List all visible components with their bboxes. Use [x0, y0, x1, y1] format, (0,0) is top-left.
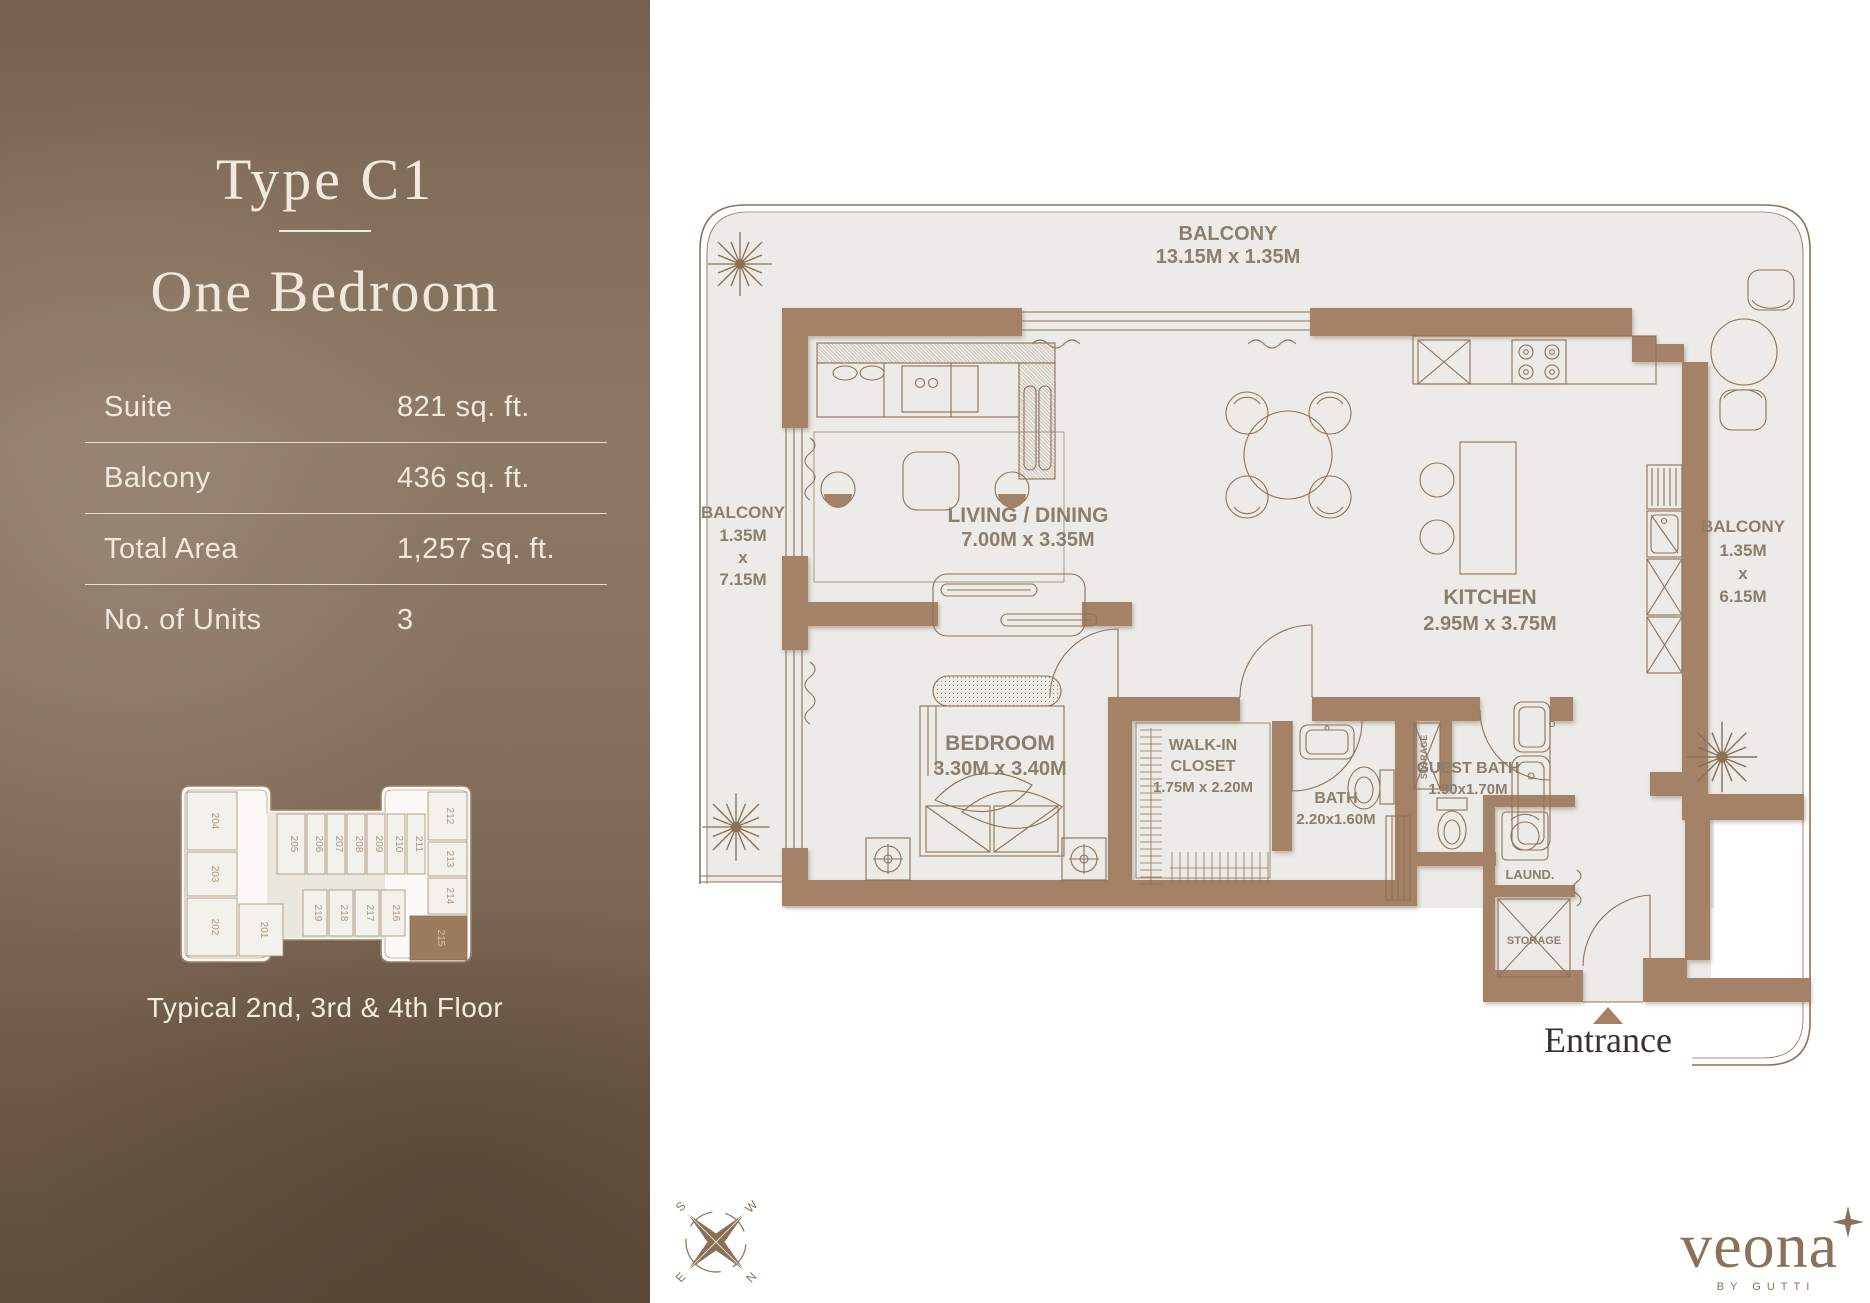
balcony-right-dims: 1.35M	[1719, 541, 1766, 560]
closet-dims: 1.75M x 2.20M	[1153, 779, 1253, 796]
key-plan: 204 203 202 201 205 206 207 208 209 210 …	[181, 786, 471, 962]
floor-plan: BALCONY 13.15M x 1.35M BALCONY 1.35M x 7…	[700, 205, 1810, 1065]
balcony-top-label: BALCONY	[1179, 223, 1279, 245]
unit-number: 209	[373, 836, 384, 853]
closet-label: WALK-IN	[1169, 737, 1237, 754]
unit-number: 213	[444, 851, 455, 868]
guest-bath-dims: 1.90x1.70M	[1428, 781, 1507, 798]
bedroom-dims: 3.30M x 3.40M	[933, 758, 1066, 780]
unit-number: 219	[312, 905, 323, 922]
logo-tagline: BY GUTTI	[1717, 1281, 1816, 1293]
balcony-left-label: BALCONY	[701, 503, 786, 522]
closet-label: CLOSET	[1171, 758, 1236, 775]
balcony-top-dims: 13.15M x 1.35M	[1156, 246, 1301, 268]
brochure-page: Type C1 One Bedroom Suite 821 sq. ft. Ba…	[0, 0, 1870, 1303]
guest-bath-label: GUEST BATH	[1417, 760, 1520, 777]
balcony-right-dims: 6.15M	[1719, 587, 1766, 606]
balcony-right-dims: x	[1738, 564, 1748, 583]
unit-number: 212	[444, 808, 455, 825]
unit-number: 204	[209, 813, 220, 830]
unit-number: 210	[393, 836, 404, 853]
unit-number: 211	[413, 836, 424, 852]
unit-number: 205	[288, 836, 299, 853]
storage-room-label: STORAGE	[1507, 935, 1561, 947]
unit-number: 201	[258, 922, 269, 939]
balcony-left-dims: 7.15M	[719, 570, 766, 589]
storage-closet-label: STORAGE	[1419, 735, 1429, 779]
entrance-label: Entrance	[1544, 1020, 1672, 1060]
compass-s: S	[673, 1199, 689, 1215]
unit-number: 208	[353, 836, 364, 853]
living-label: LIVING / DINING	[947, 504, 1108, 527]
balcony-left-dims: 1.35M	[719, 526, 766, 545]
compass-n: N	[743, 1269, 759, 1285]
balcony-left-dims: x	[738, 548, 748, 567]
kitchen-dims: 2.95M x 3.75M	[1423, 613, 1556, 635]
kitchen-label: KITCHEN	[1443, 586, 1536, 609]
bedroom-label: BEDROOM	[945, 732, 1055, 755]
unit-number: 214	[444, 888, 455, 905]
balcony-right-label: BALCONY	[1701, 517, 1786, 536]
unit-number: 203	[209, 866, 220, 883]
unit-number: 218	[338, 905, 349, 922]
drawing-layer: 204 203 202 201 205 206 207 208 209 210 …	[0, 0, 1870, 1303]
unit-number: 206	[313, 836, 324, 853]
unit-number-highlighted: 215	[435, 930, 446, 947]
compass-w: W	[742, 1197, 760, 1215]
unit-number: 202	[209, 919, 220, 936]
brand-logo: veona BY GUTTI	[1680, 1206, 1864, 1293]
bath-label: BATH	[1314, 790, 1357, 807]
unit-number: 216	[390, 905, 401, 922]
unit-number: 207	[333, 836, 344, 853]
logo-wordmark: veona	[1680, 1210, 1838, 1281]
unit-number: 217	[364, 905, 375, 922]
bath-dims: 2.20x1.60M	[1296, 811, 1375, 828]
living-dims: 7.00M x 3.35M	[961, 529, 1094, 551]
laundry-label: LAUND.	[1505, 867, 1554, 882]
compass-rose-icon: N S E W	[638, 1162, 797, 1303]
entrance-marker: Entrance	[1544, 1007, 1672, 1060]
compass-e: E	[673, 1270, 689, 1286]
